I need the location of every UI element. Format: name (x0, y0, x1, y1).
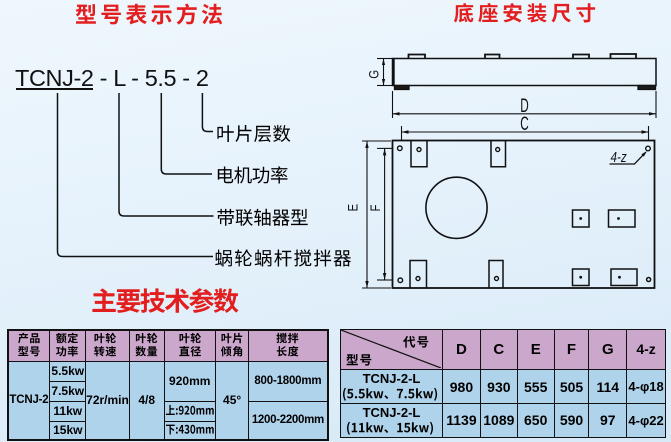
svg-text:C: C (520, 115, 529, 135)
svg-text:E: E (346, 204, 361, 212)
svg-text:G: G (367, 70, 382, 79)
svg-text:4-z: 4-z (611, 148, 627, 165)
svg-text:F: F (368, 204, 383, 211)
